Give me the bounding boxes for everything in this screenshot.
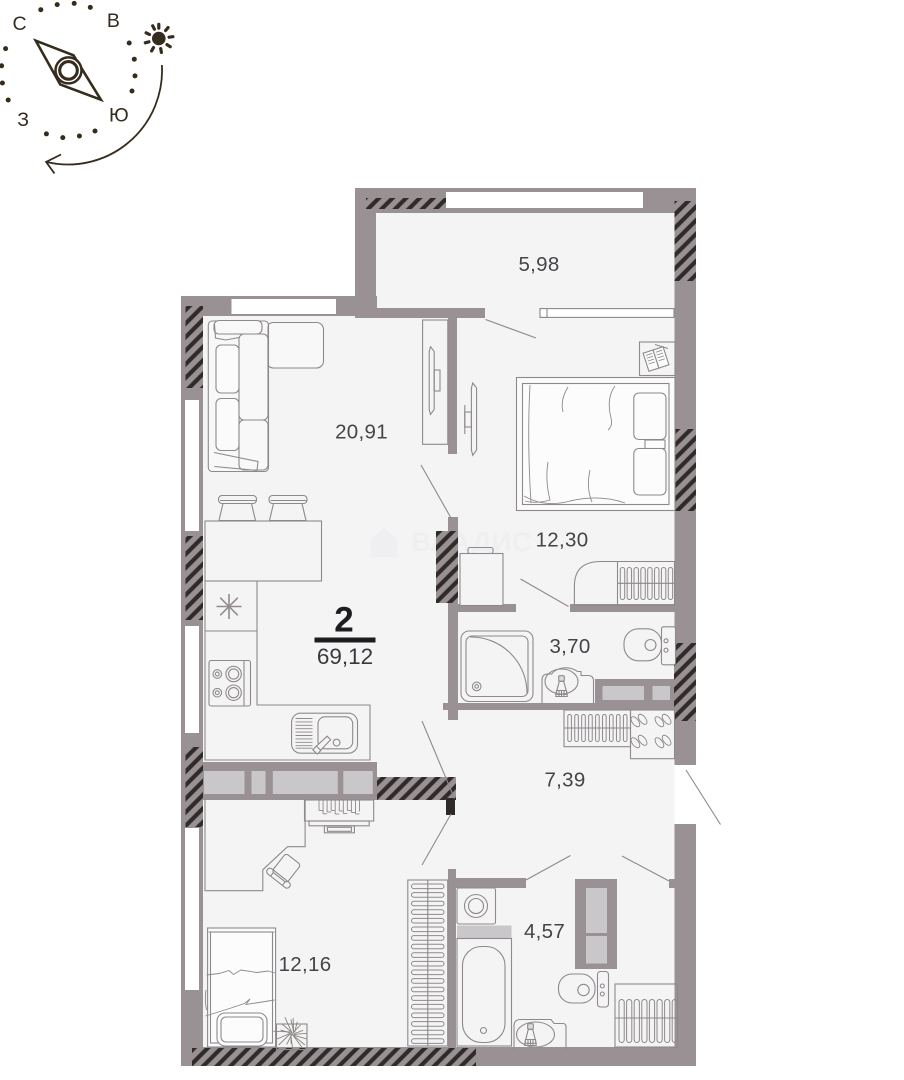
- svg-text:В: В: [107, 10, 120, 32]
- svg-text:2: 2: [334, 601, 353, 640]
- svg-text:7,39: 7,39: [544, 769, 585, 792]
- svg-text:Ю: Ю: [109, 104, 129, 126]
- svg-text:З: З: [17, 109, 29, 131]
- svg-text:С: С: [12, 13, 26, 35]
- svg-text:4,57: 4,57: [524, 920, 565, 943]
- svg-text:ВЛАДИС: ВЛАДИС: [411, 527, 532, 557]
- svg-text:20,91: 20,91: [335, 421, 388, 444]
- svg-text:12,30: 12,30: [536, 529, 589, 552]
- svg-text:69,12: 69,12: [317, 644, 373, 669]
- svg-text:3,70: 3,70: [549, 635, 590, 658]
- svg-text:12,16: 12,16: [279, 953, 332, 976]
- svg-text:5,98: 5,98: [518, 253, 559, 276]
